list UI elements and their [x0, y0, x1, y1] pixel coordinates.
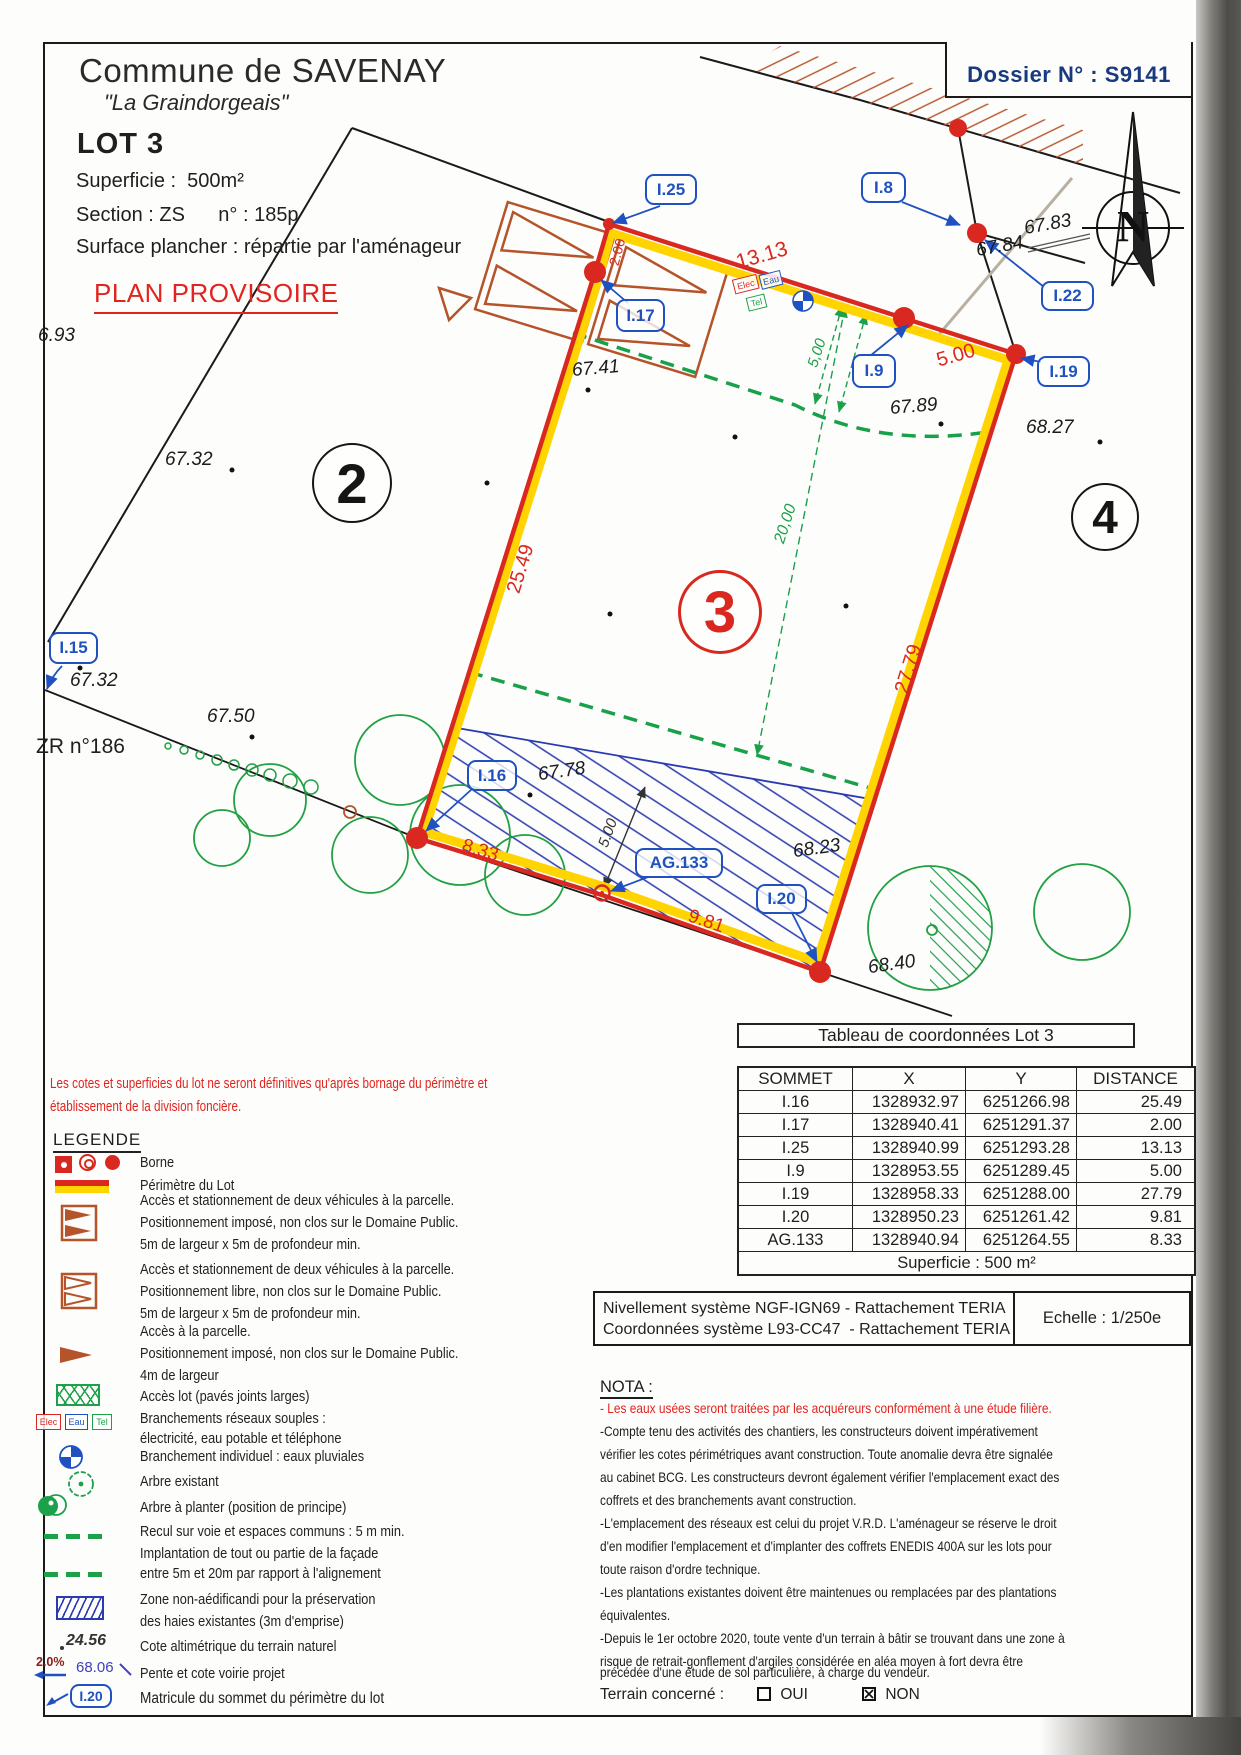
cell: I.9 — [738, 1160, 853, 1183]
cell: 6251261.42 — [966, 1206, 1077, 1229]
nota-line: -Les plantations existantes doivent être… — [600, 1584, 1056, 1600]
cell: 1328940.41 — [853, 1114, 966, 1137]
north-letter: N — [1117, 201, 1149, 252]
table-row: I.201328950.236251261.429.81 — [738, 1206, 1195, 1229]
legend-acces-impose-1: Accès et stationnement de deux véhicules… — [140, 1193, 454, 1209]
dossier-number: Dossier N° : S9141 — [967, 62, 1171, 88]
zr-parcel-label: ZR n°186 — [36, 735, 125, 759]
cell: AG.133 — [738, 1229, 853, 1252]
legend-title: LEGENDE — [53, 1130, 141, 1153]
cadastre-section: Section : ZS n° : 185p — [76, 204, 299, 227]
nota-line: précédée d'une étude de sol particulière… — [600, 1664, 930, 1680]
table-row: AG.1331328940.946251264.558.33 — [738, 1229, 1195, 1252]
legend-tel-box: Tel — [92, 1414, 112, 1430]
non-checkbox-checked — [862, 1687, 876, 1701]
zone-non-aedificandi-icon — [56, 1596, 104, 1620]
floor-area-note: Surface plancher : répartie par l'aménag… — [76, 236, 461, 259]
acces-lot-icon — [56, 1384, 100, 1406]
col-header-distance: DISTANCE — [1077, 1067, 1196, 1091]
lot-number: LOT 3 — [77, 128, 164, 161]
vertex-label-i22: I.22 — [1041, 281, 1094, 311]
level-67-89: 67.89 — [889, 394, 938, 420]
cell: 1328932.97 — [853, 1091, 966, 1114]
cell: 8.33 — [1077, 1229, 1196, 1252]
legend-acces-libre-2: Positionnement libre, non clos sur le Do… — [140, 1284, 441, 1300]
cote-altimetrique-sample: 24.56 — [66, 1632, 106, 1650]
table-row: I.191328958.336251288.0027.79 — [738, 1183, 1195, 1206]
arbre-existant-icon — [64, 1468, 98, 1500]
cell: 6251293.28 — [966, 1137, 1077, 1160]
pente-tick-icon — [118, 1662, 134, 1678]
disclaimer-line1: Les cotes et superficies du lot ne seron… — [50, 1075, 487, 1092]
vertex-label-i20: I.20 — [756, 884, 807, 914]
dossier-box: Dossier N° : S9141 — [945, 42, 1191, 98]
terrain-concerne-label: Terrain concerné : — [600, 1686, 724, 1704]
legend-zone-1: Zone non-aédificandi pour la préservatio… — [140, 1592, 376, 1608]
table-footer: Superficie : 500 m² — [738, 1252, 1195, 1276]
cell: 6251266.98 — [966, 1091, 1077, 1114]
vertex-label-i16: I.16 — [467, 760, 517, 791]
vertex-label-i8: I.8 — [861, 172, 906, 203]
terrain-non-option: NON — [862, 1686, 920, 1704]
nota-line: -L'emplacement des réseaux est celui du … — [600, 1515, 1057, 1531]
coordinate-system: Coordonnées système L93-CC47 - Rattachem… — [603, 1319, 1013, 1340]
vertex-label-i15: I.15 — [49, 632, 98, 664]
legend-pente-text: Pente et cote voirie projet — [140, 1666, 285, 1682]
table-row: I.91328953.556251289.455.00 — [738, 1160, 1195, 1183]
cell: 9.81 — [1077, 1206, 1196, 1229]
legend-acces-impose-2: Positionnement imposé, non clos sur le D… — [140, 1215, 458, 1231]
cell: 1328940.94 — [853, 1229, 966, 1252]
legend-arbre-planter: Arbre à planter (position de principe) — [140, 1500, 346, 1516]
pente-percent: 2.0% — [36, 1655, 65, 1669]
terrain-oui-option: OUI — [757, 1686, 808, 1704]
vertex-label-i19: I.19 — [1037, 356, 1090, 387]
parcel-3-number: 3 — [678, 570, 762, 654]
nota-line: coffrets et des branchements avant const… — [600, 1492, 856, 1508]
col-header-sommet: SOMMET — [738, 1067, 853, 1091]
cell: 1328950.23 — [853, 1206, 966, 1229]
plan-document-page: Commune de SAVENAY "La Graindorgeais" LO… — [0, 0, 1241, 1755]
geodetic-reference: Nivellement système NGF-IGN69 - Rattache… — [595, 1293, 1015, 1344]
nota-line: -Compte tenu des activités des chantiers… — [600, 1423, 1038, 1439]
place-name: "La Graindorgeais" — [104, 90, 288, 116]
vertex-label-i25: I.25 — [645, 174, 697, 205]
cell: I.20 — [738, 1206, 853, 1229]
table-footer-row: Superficie : 500 m² — [738, 1252, 1195, 1276]
recul-dash-icon-1 — [44, 1534, 108, 1539]
cell: 25.49 — [1077, 1091, 1196, 1114]
level-67-32-b: 67.32 — [70, 670, 118, 692]
parcel-2-number: 2 — [312, 443, 392, 523]
pente-cote-sample: 68.06 — [76, 1659, 114, 1676]
pente-arrow-icon — [34, 1670, 68, 1680]
cell: 6251264.55 — [966, 1229, 1077, 1252]
cell: 6251289.45 — [966, 1160, 1077, 1183]
branchements-icon: Elec Eau Tel — [36, 1414, 126, 1432]
acces-parcelle-icon — [58, 1345, 96, 1365]
scan-corner-shadow — [1040, 1717, 1241, 1755]
level-67-50: 67.50 — [207, 706, 255, 728]
levelling-system: Nivellement système NGF-IGN69 - Rattache… — [603, 1298, 1013, 1319]
vertex-label-i17: I.17 — [616, 299, 665, 332]
borne-ring-icon — [79, 1154, 96, 1171]
level-68-27: 68.27 — [1026, 417, 1074, 439]
table-row: I.251328940.996251293.2813.13 — [738, 1137, 1195, 1160]
parcel-4-number: 4 — [1071, 483, 1139, 551]
legend-recul-3: entre 5m et 20m par rapport à l'aligneme… — [140, 1566, 381, 1582]
cell: 5.00 — [1077, 1160, 1196, 1183]
nota-line: équivalentes. — [600, 1607, 670, 1623]
legend-branchements-2: électricité, eau potable et téléphone — [140, 1431, 341, 1447]
cote-dot — [60, 1646, 64, 1650]
cell: I.16 — [738, 1091, 853, 1114]
legend-recul-2: Implantation de tout ou partie de la faç… — [140, 1546, 378, 1562]
oui-label: OUI — [780, 1686, 808, 1703]
level-6-93: 6.93 — [38, 325, 75, 347]
table-title: Tableau de coordonnées Lot 3 — [737, 1023, 1135, 1048]
non-label: NON — [885, 1686, 919, 1703]
col-header-x: X — [853, 1067, 966, 1091]
legend-elec-box: Elec — [36, 1414, 61, 1430]
vertex-label-ag133: AG.133 — [635, 848, 723, 878]
eaux-pluviales-icon — [58, 1444, 84, 1470]
cell: 13.13 — [1077, 1137, 1196, 1160]
legend-acces-parcelle-1: Accès à la parcelle. — [140, 1324, 251, 1340]
legend-branchements-1: Branchements réseaux souples : — [140, 1411, 326, 1427]
matricule-arrow-icon — [44, 1690, 70, 1708]
recul-dash-icon-2 — [44, 1572, 108, 1577]
coordinates-table: SOMMET X Y DISTANCE I.161328932.97625126… — [737, 1066, 1196, 1276]
cell: 6251291.37 — [966, 1114, 1077, 1137]
nota-line: toute raison d'ordre technique. — [600, 1561, 760, 1577]
reference-box: Nivellement système NGF-IGN69 - Rattache… — [593, 1291, 1191, 1346]
table-header-row: SOMMET X Y DISTANCE — [738, 1067, 1195, 1091]
plan-status: PLAN PROVISOIRE — [94, 278, 338, 314]
legend-acces-libre-3: 5m de largeur x 5m de profondeur min. — [140, 1306, 361, 1322]
arbre-planter-icon — [36, 1492, 68, 1520]
col-header-y: Y — [966, 1067, 1077, 1091]
legend-recul-1: Recul sur voie et espaces communs : 5 m … — [140, 1524, 405, 1540]
scale-cell: Echelle : 1/250e — [1015, 1293, 1189, 1344]
commune-title: Commune de SAVENAY — [79, 52, 446, 90]
level-67-32-a: 67.32 — [165, 449, 213, 471]
legend-borne: Borne — [140, 1155, 174, 1171]
cell: 2.00 — [1077, 1114, 1196, 1137]
tel-box: Tel — [746, 293, 768, 311]
matricule-sample-label: I.20 — [70, 1684, 112, 1708]
table-row: I.161328932.976251266.9825.49 — [738, 1091, 1195, 1114]
acces-impose-icon — [60, 1204, 100, 1242]
table-row: I.171328940.416251291.372.00 — [738, 1114, 1195, 1137]
eau-box: Eau — [758, 270, 783, 290]
legend-acces-libre-1: Accès et stationnement de deux véhicules… — [140, 1262, 454, 1278]
lot-area: Superficie : 500m² — [76, 170, 244, 193]
scan-edge-shadow — [1196, 0, 1241, 1755]
cell: 27.79 — [1077, 1183, 1196, 1206]
cell: I.25 — [738, 1137, 853, 1160]
nota-red-line: - Les eaux usées seront traitées par les… — [600, 1400, 1052, 1416]
nota-line: au cabinet BCG. Les constructeurs devron… — [600, 1469, 1059, 1485]
legend-acces-lot: Accès lot (pavés joints larges) — [140, 1389, 309, 1405]
legend-zone-2: des haies existantes (3m d'emprise) — [140, 1614, 344, 1630]
borne-dot-icon — [105, 1155, 120, 1170]
borne-square-icon — [55, 1156, 72, 1173]
nota-line: vérifier les cotes périmétriques avant c… — [600, 1446, 1053, 1462]
cell: I.17 — [738, 1114, 853, 1137]
legend-eau-box: Eau — [65, 1414, 88, 1430]
nota-line: d'en modifier l'emplacement et d'implant… — [600, 1538, 1052, 1554]
acces-libre-icon — [60, 1272, 100, 1310]
disclaimer-line2: établissement de la division foncière. — [50, 1098, 241, 1115]
legend-acces-impose-3: 5m de largeur x 5m de profondeur min. — [140, 1237, 361, 1253]
legend-cote-text: Cote altimétrique du terrain naturel — [140, 1639, 336, 1655]
oui-checkbox — [757, 1687, 771, 1701]
cell: 1328953.55 — [853, 1160, 966, 1183]
legend-branchement-ep: Branchement individuel : eaux pluviales — [140, 1449, 364, 1465]
legend-acces-parcelle-2: Positionnement imposé, non clos sur le D… — [140, 1346, 458, 1362]
vertex-label-i9: I.9 — [852, 354, 896, 388]
cell: 1328958.33 — [853, 1183, 966, 1206]
perimeter-swatch — [55, 1180, 109, 1193]
cell: I.19 — [738, 1183, 853, 1206]
legend-acces-parcelle-3: 4m de largeur — [140, 1368, 219, 1384]
cell: 6251288.00 — [966, 1183, 1077, 1206]
nota-title: NOTA : — [600, 1378, 653, 1399]
legend-matricule-text: Matricule du sommet du périmètre du lot — [140, 1690, 384, 1708]
cell: 1328940.99 — [853, 1137, 966, 1160]
level-67-41: 67.41 — [571, 356, 620, 382]
nota-line: -Depuis le 1er octobre 2020, toute vente… — [600, 1630, 1065, 1646]
legend-arbre-existant: Arbre existant — [140, 1474, 219, 1490]
